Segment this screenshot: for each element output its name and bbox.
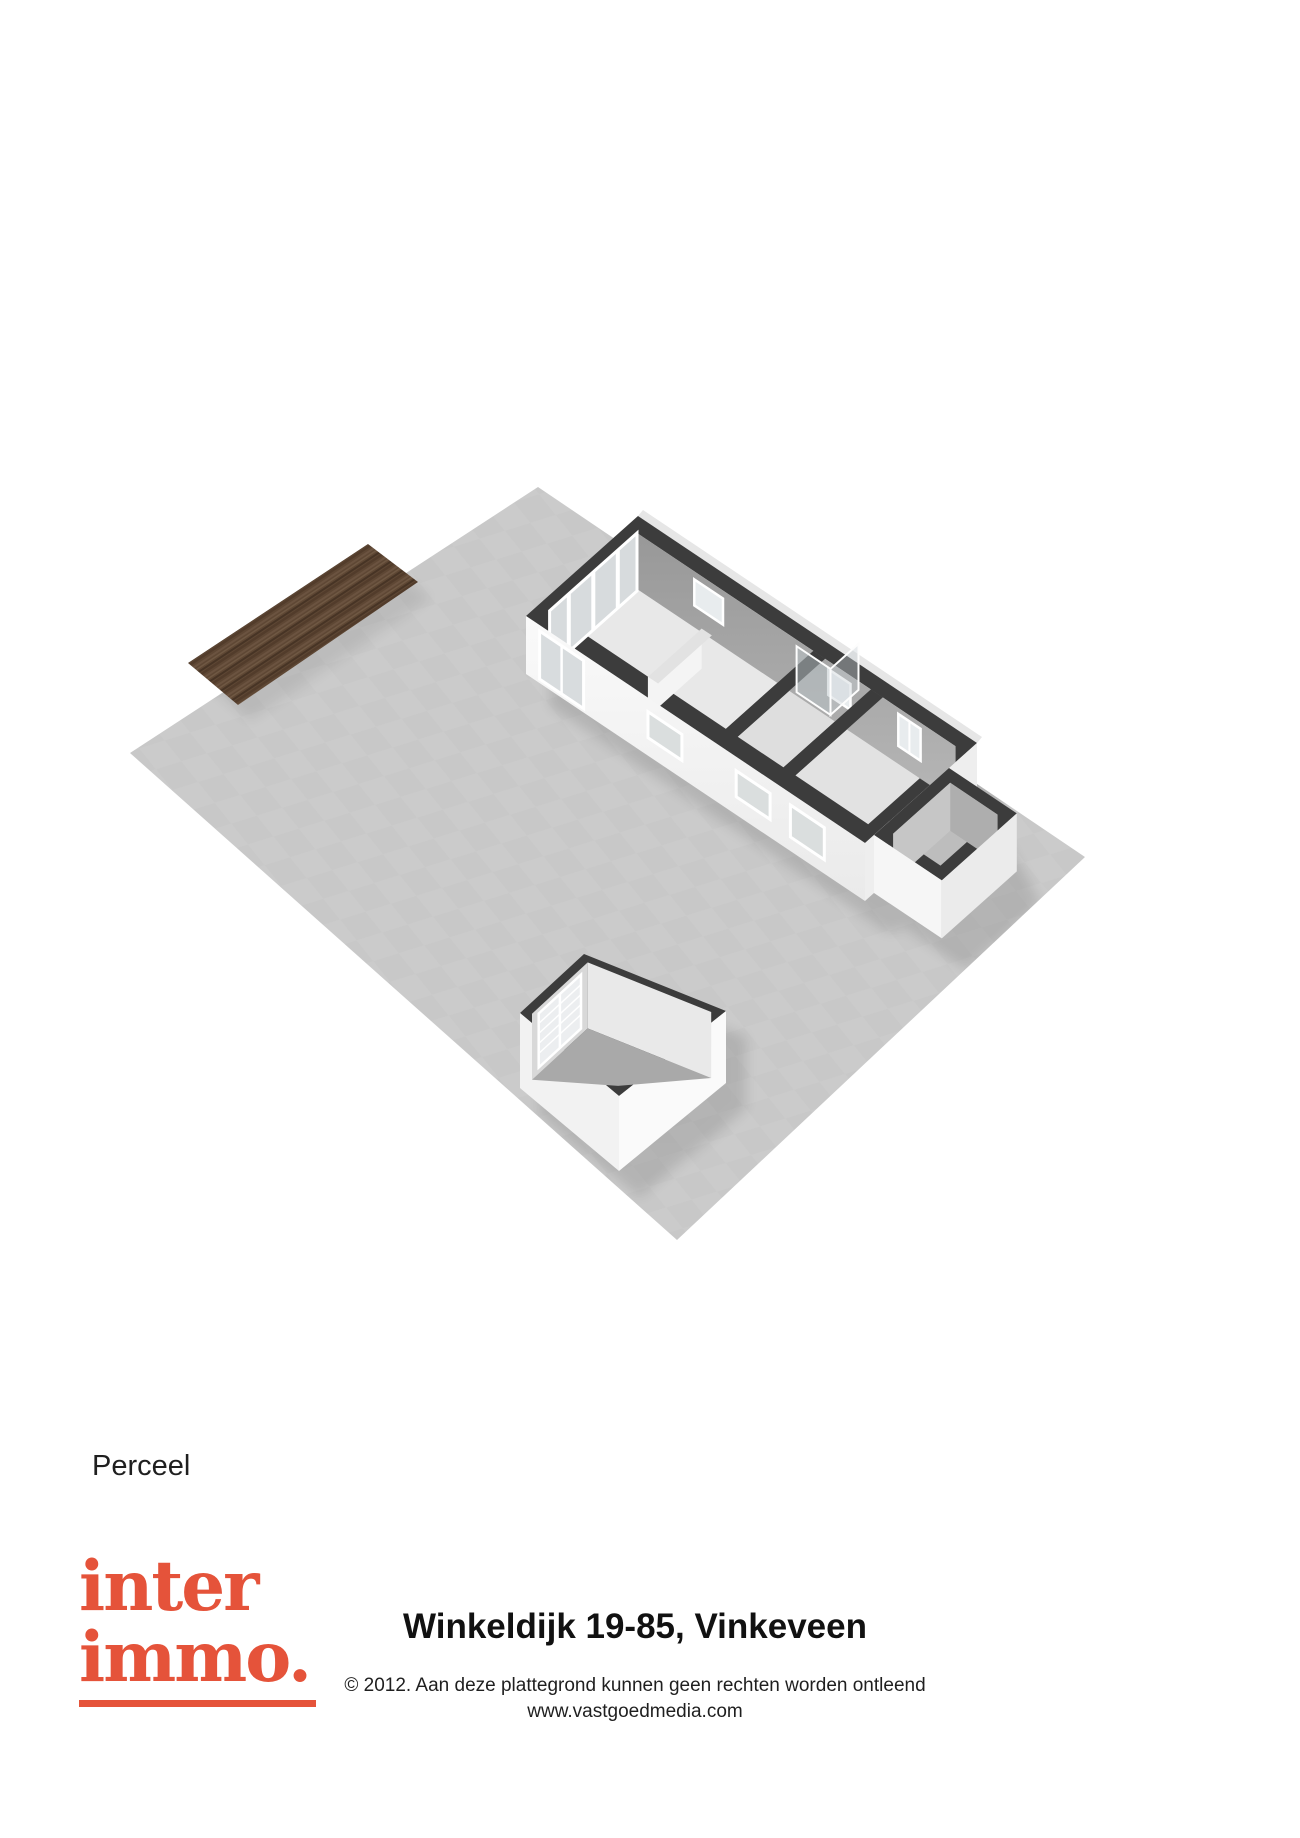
- copyright-block: © 2012. Aan deze plattegrond kunnen geen…: [295, 1673, 975, 1725]
- logo-line-1: inter: [79, 1551, 316, 1622]
- website-url: www.vastgoedmedia.com: [295, 1699, 975, 1725]
- page-title: Winkeldijk 19-85, Vinkeveen: [325, 1607, 945, 1647]
- plan-label: Perceel: [92, 1449, 190, 1483]
- floorplan-page: Perceel inter immo. Winkeldijk 19-85, Vi…: [0, 0, 1300, 1838]
- logo: inter immo.: [79, 1551, 316, 1707]
- copyright-disclaimer: © 2012. Aan deze plattegrond kunnen geen…: [295, 1673, 975, 1699]
- logo-underline: [79, 1700, 316, 1707]
- logo-line-2: immo.: [79, 1622, 316, 1693]
